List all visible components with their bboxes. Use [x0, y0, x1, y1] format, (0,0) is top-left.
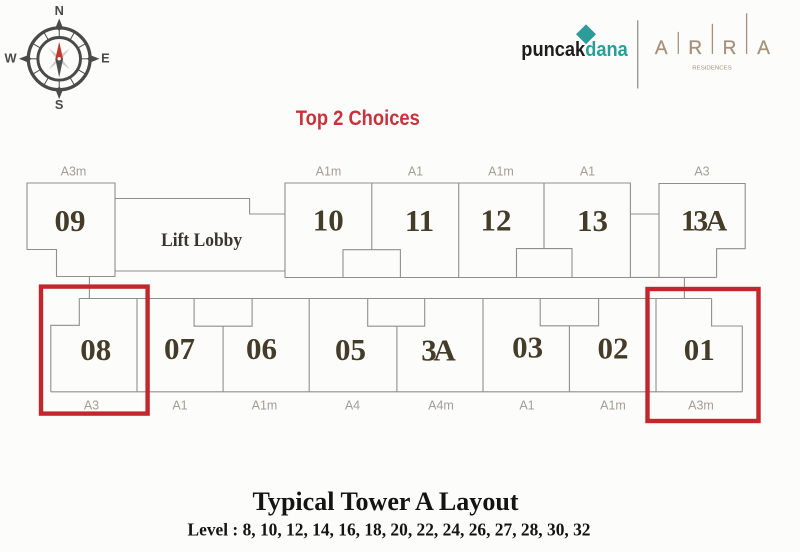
- svg-text:R: R: [688, 38, 702, 59]
- svg-text:A1m: A1m: [252, 398, 278, 412]
- svg-text:03: 03: [512, 330, 543, 365]
- svg-text:A1: A1: [172, 398, 187, 412]
- svg-text:A1m: A1m: [488, 165, 514, 179]
- svg-text:puncakdana: puncakdana: [521, 39, 628, 61]
- svg-text:A3: A3: [694, 165, 709, 179]
- svg-text:13: 13: [577, 203, 608, 238]
- svg-text:W: W: [5, 51, 18, 66]
- svg-text:N: N: [55, 3, 64, 18]
- svg-text:01: 01: [684, 332, 715, 367]
- svg-text:RESIDENCES: RESIDENCES: [692, 65, 732, 71]
- svg-text:A3m: A3m: [688, 398, 714, 412]
- svg-text:S: S: [55, 97, 64, 112]
- svg-text:A3: A3: [84, 398, 99, 412]
- svg-text:12: 12: [481, 202, 512, 237]
- svg-text:13A: 13A: [681, 204, 728, 237]
- svg-text:Top 2 Choices: Top 2 Choices: [296, 107, 420, 130]
- svg-text:08: 08: [80, 332, 111, 367]
- svg-text:11: 11: [405, 203, 434, 238]
- svg-text:A: A: [757, 38, 770, 59]
- svg-text:02: 02: [598, 330, 629, 365]
- svg-text:A: A: [655, 38, 668, 59]
- svg-text:05: 05: [335, 332, 366, 367]
- svg-text:A3m: A3m: [61, 165, 87, 179]
- svg-text:A1: A1: [580, 165, 595, 179]
- svg-text:E: E: [101, 51, 110, 66]
- svg-text:06: 06: [246, 331, 277, 366]
- svg-text:3A: 3A: [421, 332, 456, 367]
- svg-text:07: 07: [164, 331, 195, 366]
- svg-text:A1m: A1m: [600, 398, 626, 412]
- svg-text:Typical Tower A Layout: Typical Tower A Layout: [253, 486, 519, 516]
- svg-text:A1m: A1m: [316, 165, 342, 179]
- svg-text:R: R: [723, 38, 737, 59]
- svg-text:A1: A1: [519, 398, 534, 412]
- svg-text:A1: A1: [408, 165, 423, 179]
- svg-text:A4: A4: [345, 398, 360, 412]
- svg-text:A4m: A4m: [428, 398, 454, 412]
- svg-text:09: 09: [55, 203, 86, 238]
- svg-text:Lift Lobby: Lift Lobby: [161, 230, 242, 251]
- svg-text:10: 10: [313, 203, 344, 238]
- svg-text:Level : 8, 10, 12, 14, 16, 18,: Level : 8, 10, 12, 14, 16, 18, 20, 22, 2…: [188, 520, 591, 540]
